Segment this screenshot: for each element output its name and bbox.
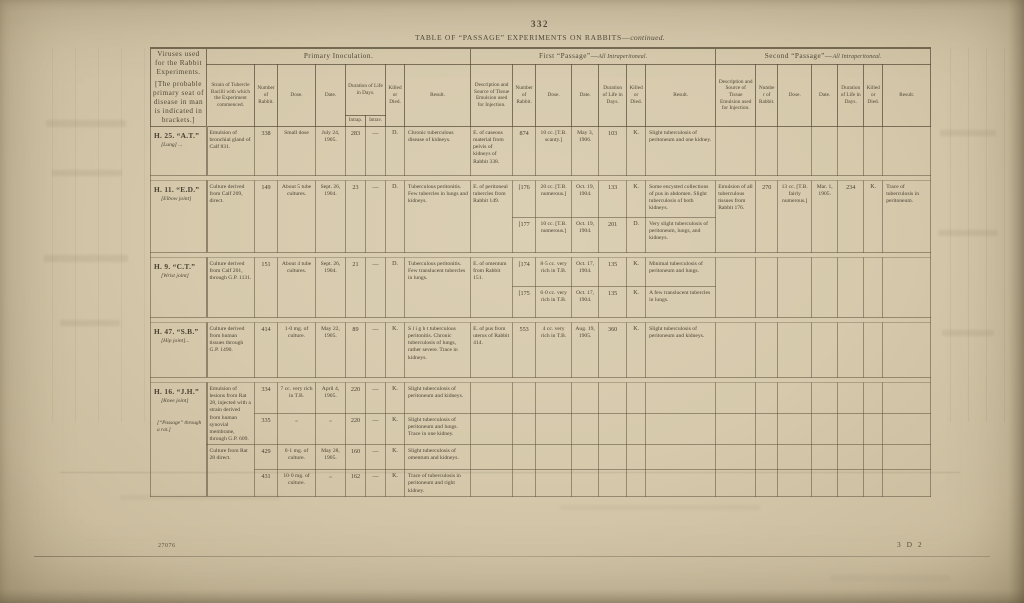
empty-cell — [756, 258, 778, 318]
row-h16-b: 335 „ „ 220 — K. Slight tuberculosis of … — [151, 414, 931, 445]
first-desc: E. of peritoneal tubercles from Rabbit 1… — [471, 181, 513, 253]
experiment-site-note: [“Passage” through a rat.] — [154, 420, 204, 434]
empty-cell — [883, 445, 931, 470]
primary-intrav: — — [366, 414, 386, 445]
empty-cell — [471, 445, 513, 470]
col-primary-killed: Killed or Died. — [386, 64, 405, 127]
col-primary-number: Number of Rabbit. — [255, 64, 278, 127]
empty-cell — [756, 445, 778, 470]
empty-cell — [838, 323, 864, 378]
empty-cell — [513, 414, 536, 445]
first-number: [174 — [513, 258, 536, 287]
empty-cell — [778, 445, 812, 470]
second-passage-title: Second “Passage”— — [765, 52, 833, 60]
experiment-id: H. 47. “S.B.” — [154, 327, 204, 336]
primary-dose: About 4 tube cultures. — [278, 258, 316, 318]
empty-cell — [864, 470, 883, 497]
first-killed: D. — [627, 218, 646, 253]
primary-date: „ — [316, 414, 346, 445]
primary-killed: K. — [386, 470, 405, 497]
empty-cell — [883, 414, 931, 445]
experiment-site: [Knee joint] — [154, 398, 204, 405]
primary-date: July 24, 1905. — [316, 127, 346, 176]
first-duration: 135 — [599, 258, 627, 287]
experiment-site: [Wrist joint] — [154, 273, 204, 280]
empty-cell — [572, 383, 599, 414]
second-desc: Emulsion of all tuberculous tissues from… — [716, 181, 756, 253]
showthrough-rule — [60, 472, 960, 473]
empty-cell — [572, 414, 599, 445]
virus-label: H. 25. “A.T.” [Lung] ... — [151, 127, 207, 176]
caption-continued: continued. — [630, 33, 665, 42]
first-date: Oct. 19, 1904. — [572, 181, 599, 218]
empty-cell — [716, 323, 756, 378]
primary-intrap: 89 — [346, 323, 366, 378]
col-second-date: Date. — [812, 64, 838, 127]
second-killed: K. — [864, 181, 883, 253]
group-first-passage: First “Passage”—All Intraperitoneal. — [471, 48, 716, 64]
showthrough-left — [30, 48, 148, 422]
col-primary-result: Result. — [405, 64, 471, 127]
col-strain: Strain of Tubercle Bacilli with which th… — [207, 64, 255, 127]
strain-cell: Culture from Rat 28 direct. — [207, 445, 255, 497]
row-h11-a: H. 11. “E.D.” [Elbow joint] Culture deri… — [151, 181, 931, 218]
primary-killed: K. — [386, 414, 405, 445]
page-edge-shadow — [1008, 0, 1024, 603]
first-dose: 6·0 cc. very rich in T.B. — [536, 287, 572, 318]
empty-cell — [838, 127, 864, 176]
empty-cell — [883, 127, 931, 176]
experiment-id: H. 25. “A.T.” — [154, 131, 204, 140]
empty-cell — [627, 445, 646, 470]
first-number: [176 — [513, 181, 536, 218]
primary-result: Trace of tuberculosis in peritoneum and … — [405, 470, 471, 497]
page-number: 332 — [150, 19, 930, 29]
header-viruses: Viruses used for the Rabbit Experiments.… — [151, 48, 207, 127]
showthrough-smudge — [120, 495, 280, 500]
primary-intrav: — — [366, 258, 386, 318]
empty-cell — [864, 383, 883, 414]
showthrough-smudge — [46, 120, 126, 127]
empty-cell — [883, 323, 931, 378]
group-second-passage: Second “Passage”—All Intraperitoneal. — [716, 48, 931, 64]
strain-cell: Emulsion of lesions from Rat 28, injecte… — [207, 383, 255, 445]
experiment-site: [Hip joint]... — [154, 338, 204, 345]
primary-dose: Small dose — [278, 127, 316, 176]
caption-main: TABLE OF “PASSAGE” EXPERIMENTS ON RABBIT… — [415, 33, 630, 42]
first-dose: 20 cc. [T.B. numerous.] — [536, 181, 572, 218]
empty-cell — [716, 383, 756, 414]
first-dose: 10 cc. [T.B. scanty.] — [536, 127, 572, 176]
virus-label: H. 9. “C.T.” [Wrist joint] — [151, 258, 207, 318]
primary-intrav: — — [366, 323, 386, 378]
first-date: Oct. 19, 1904. — [572, 218, 599, 253]
first-passage-note: All Intraperitoneal. — [598, 54, 647, 60]
empty-cell — [646, 445, 716, 470]
empty-cell — [536, 414, 572, 445]
empty-cell — [838, 470, 864, 497]
empty-cell — [883, 258, 931, 318]
col-first-dose: Dose. — [536, 64, 572, 127]
second-date: Mar. 1, 1905. — [812, 181, 838, 253]
col-first-duration: Duration of Life in Days. — [599, 64, 627, 127]
first-dose: 10 cc. [T.B. numerous.] — [536, 218, 572, 253]
primary-dose: „ — [278, 414, 316, 445]
empty-cell — [716, 470, 756, 497]
empty-cell — [864, 258, 883, 318]
empty-cell — [627, 414, 646, 445]
empty-cell — [513, 470, 536, 497]
gathering-signature: 3 D 2 — [897, 540, 924, 549]
second-number: 270 — [756, 181, 778, 253]
showthrough-smudge — [940, 130, 996, 136]
row-h16-d: 431 10·0 mg. of culture. „ 162 — K. Trac… — [151, 470, 931, 497]
first-dose: 4 cc. very rich in T.B. — [536, 323, 572, 378]
empty-cell — [812, 258, 838, 318]
empty-cell — [536, 470, 572, 497]
first-duration: 103 — [599, 127, 627, 176]
footer-rule — [34, 556, 990, 557]
col-intrap: Intrap. — [346, 116, 366, 127]
primary-number: 335 — [255, 414, 278, 445]
primary-intrap: 21 — [346, 258, 366, 318]
primary-number: 429 — [255, 445, 278, 470]
first-duration: 360 — [599, 323, 627, 378]
first-duration: 201 — [599, 218, 627, 253]
empty-cell — [756, 383, 778, 414]
col-second-desc: Description and Source of Tissue Emulsio… — [716, 64, 756, 127]
col-intrav: Intrav. — [366, 116, 386, 127]
empty-cell — [838, 258, 864, 318]
virus-label: H. 11. “E.D.” [Elbow joint] — [151, 181, 207, 253]
first-number: [177 — [513, 218, 536, 253]
row-h47: H. 47. “S.B.” [Hip joint]... Culture der… — [151, 323, 931, 378]
showthrough-smudge — [942, 330, 994, 336]
showthrough-smudge — [938, 230, 998, 236]
showthrough-smudge — [44, 255, 128, 262]
primary-date: May 22, 1905. — [316, 323, 346, 378]
primary-date: „ — [316, 470, 346, 497]
first-duration: 135 — [599, 287, 627, 318]
first-number: [175 — [513, 287, 536, 318]
empty-cell — [778, 127, 812, 176]
table-caption: TABLE OF “PASSAGE” EXPERIMENTS ON RABBIT… — [110, 33, 970, 42]
empty-cell — [864, 414, 883, 445]
primary-result: S l i g h t tuberculous peritonitis. Chr… — [405, 323, 471, 378]
printer-signature: 27076 — [158, 543, 176, 549]
primary-intrap: 220 — [346, 383, 366, 414]
primary-dose: 10·0 mg. of culture. — [278, 470, 316, 497]
first-desc: E. of omentum from Rabbit 151. — [471, 258, 513, 318]
empty-cell — [599, 414, 627, 445]
empty-cell — [536, 383, 572, 414]
first-killed: K. — [627, 258, 646, 287]
primary-number: 431 — [255, 470, 278, 497]
primary-intrav: — — [366, 181, 386, 253]
first-date: Oct. 17, 1904. — [572, 287, 599, 318]
primary-dose: 7 cc. very rich in T.B. — [278, 383, 316, 414]
primary-intrap: 283 — [346, 127, 366, 176]
second-dose: 13 cc. [T.B. fairly numerous.] — [778, 181, 812, 253]
viruses-title: Viruses used for the Rabbit Experiments. — [153, 50, 204, 77]
col-first-date: Date. — [572, 64, 599, 127]
primary-date: May 28, 1905. — [316, 445, 346, 470]
primary-result: Slight tuberculosis of omentum and kidne… — [405, 445, 471, 470]
empty-cell — [812, 470, 838, 497]
primary-number: 334 — [255, 383, 278, 414]
empty-cell — [471, 414, 513, 445]
second-passage-note: All Intraperitoneal. — [833, 54, 882, 60]
first-killed: K. — [627, 287, 646, 318]
primary-dose: 0·1 mg. of culture. — [278, 445, 316, 470]
primary-number: 149 — [255, 181, 278, 253]
first-result: Very slight tuberculosis of peritoneum, … — [646, 218, 716, 253]
first-date: Oct. 17, 1904. — [572, 258, 599, 287]
empty-cell — [838, 383, 864, 414]
primary-date: Sept. 26, 1904. — [316, 181, 346, 253]
showthrough-smudge — [60, 320, 120, 326]
empty-cell — [572, 445, 599, 470]
primary-killed: K. — [386, 445, 405, 470]
empty-cell — [471, 470, 513, 497]
col-second-duration: Duration of Life in Days. — [838, 64, 864, 127]
col-primary-date: Date. — [316, 64, 346, 127]
second-result: Trace of tuberculosis in peritoneum. — [883, 181, 931, 253]
empty-cell — [838, 445, 864, 470]
col-first-result: Result. — [646, 64, 716, 127]
strain-cell: Emulsion of bronchial gland of Calf 831. — [207, 127, 255, 176]
first-number: 874 — [513, 127, 536, 176]
empty-cell — [646, 470, 716, 497]
primary-intrap: 162 — [346, 470, 366, 497]
empty-cell — [778, 323, 812, 378]
row-h16-c: Culture from Rat 28 direct. 429 0·1 mg. … — [151, 445, 931, 470]
empty-cell — [812, 383, 838, 414]
primary-result: Slight tuberculosis of peritoneum and lu… — [405, 414, 471, 445]
primary-killed: K. — [386, 383, 405, 414]
col-first-number: Number of Rabbit. — [513, 64, 536, 127]
showthrough-smudge — [560, 505, 760, 510]
empty-cell — [716, 414, 756, 445]
first-killed: K. — [627, 181, 646, 218]
col-second-result: Result. — [883, 64, 931, 127]
empty-cell — [756, 470, 778, 497]
first-killed: K. — [627, 323, 646, 378]
first-passage-title: First “Passage”— — [539, 52, 598, 60]
primary-date: April 4, 1905. — [316, 383, 346, 414]
col-first-killed: Killed or Died. — [627, 64, 646, 127]
passage-experiments-table: Viruses used for the Rabbit Experiments.… — [150, 47, 931, 497]
first-dose: 8·5 cc. very rich in T.B. — [536, 258, 572, 287]
first-killed: K. — [627, 127, 646, 176]
empty-cell — [812, 127, 838, 176]
primary-intrav: — — [366, 127, 386, 176]
empty-cell — [599, 383, 627, 414]
primary-result: Tuberculous peritonitis. Few tubercles i… — [405, 181, 471, 253]
showthrough-smudge — [830, 575, 950, 581]
row-h25: H. 25. “A.T.” [Lung] ... Emulsion of bro… — [151, 127, 931, 176]
primary-dose: 1·0 mg. of culture. — [278, 323, 316, 378]
empty-cell — [838, 414, 864, 445]
first-date: May 3, 1906. — [572, 127, 599, 176]
empty-cell — [471, 383, 513, 414]
empty-cell — [756, 127, 778, 176]
col-primary-duration: Duration of Life in Days. — [346, 64, 386, 116]
empty-cell — [646, 414, 716, 445]
primary-number: 338 — [255, 127, 278, 176]
primary-date: Sept. 26, 1904. — [316, 258, 346, 318]
empty-cell — [599, 445, 627, 470]
primary-result: Slight tuberculosis of peritoneum and ki… — [405, 383, 471, 414]
empty-cell — [756, 323, 778, 378]
primary-intrav: — — [366, 470, 386, 497]
empty-cell — [646, 383, 716, 414]
strain-cell: Culture derived from human tissues throu… — [207, 323, 255, 378]
first-result: A few translucent tubercles in lungs. — [646, 287, 716, 318]
experiment-site: [Elbow joint] — [154, 196, 204, 203]
col-second-number: Number of Rabbit. — [756, 64, 778, 127]
empty-cell — [778, 470, 812, 497]
first-number: 553 — [513, 323, 536, 378]
scanned-page: 332 TABLE OF “PASSAGE” EXPERIMENTS ON RA… — [0, 0, 1024, 603]
experiment-id: H. 11. “E.D.” — [154, 185, 204, 194]
primary-intrav: — — [366, 445, 386, 470]
empty-cell — [864, 127, 883, 176]
virus-label: H. 47. “S.B.” [Hip joint]... — [151, 323, 207, 378]
primary-result: Tuberculous peritonitis. Few translucent… — [405, 258, 471, 318]
group-primary-inoculation: Primary Inoculation. — [207, 48, 471, 64]
primary-killed: D. — [386, 258, 405, 318]
col-second-dose: Dose. — [778, 64, 812, 127]
primary-number: 151 — [255, 258, 278, 318]
primary-killed: K. — [386, 323, 405, 378]
empty-cell — [864, 445, 883, 470]
col-second-killed: Killed or Died. — [864, 64, 883, 127]
first-result: Slight tuberculosis of peritoneum and on… — [646, 127, 716, 176]
empty-cell — [536, 445, 572, 470]
viruses-note: [The probable primary seat of disease in… — [153, 80, 204, 125]
primary-intrap: 220 — [346, 414, 366, 445]
col-first-desc: Description and Source of Tissue Emulsio… — [471, 64, 513, 127]
empty-cell — [756, 414, 778, 445]
empty-cell — [812, 323, 838, 378]
empty-cell — [716, 127, 756, 176]
first-desc: E. of pus from uterus of Rabbit 414. — [471, 323, 513, 378]
page-edge-shadow — [0, 589, 1024, 603]
empty-cell — [812, 445, 838, 470]
primary-intrap: 160 — [346, 445, 366, 470]
primary-number: 414 — [255, 323, 278, 378]
empty-cell — [599, 470, 627, 497]
primary-killed: D. — [386, 127, 405, 176]
row-h16-a: H. 16. “J.H.” [Knee joint] [“Passage” th… — [151, 383, 931, 414]
empty-cell — [716, 445, 756, 470]
empty-cell — [513, 445, 536, 470]
empty-cell — [716, 258, 756, 318]
first-result: Slight tuberculosis of peritoneum and ki… — [646, 323, 716, 378]
first-result: Minimal tuberculosis of peritoneum and l… — [646, 258, 716, 287]
primary-intrap: 23 — [346, 181, 366, 253]
virus-label: H. 16. “J.H.” [Knee joint] [“Passage” th… — [151, 383, 207, 497]
strain-cell: Culture derived from Calf 209, direct. — [207, 181, 255, 253]
primary-dose: About 5 tube cultures. — [278, 181, 316, 253]
primary-intrav: — — [366, 383, 386, 414]
experiment-id: H. 9. “C.T.” — [154, 262, 204, 271]
empty-cell — [883, 470, 931, 497]
empty-cell — [778, 383, 812, 414]
first-desc: E. of caseous material from pelvis of ki… — [471, 127, 513, 176]
empty-cell — [627, 470, 646, 497]
showthrough-smudge — [52, 170, 122, 176]
primary-killed: D. — [386, 181, 405, 253]
empty-cell — [627, 383, 646, 414]
empty-cell — [778, 414, 812, 445]
empty-cell — [864, 323, 883, 378]
first-duration: 133 — [599, 181, 627, 218]
empty-cell — [778, 258, 812, 318]
row-h9-a: H. 9. “C.T.” [Wrist joint] Culture deriv… — [151, 258, 931, 287]
empty-cell — [572, 470, 599, 497]
empty-cell — [812, 414, 838, 445]
second-duration: 234 — [838, 181, 864, 253]
primary-result: Chronic tuberculous disease of kidneys. — [405, 127, 471, 176]
strain-cell: Culture derived from Calf 201, through G… — [207, 258, 255, 318]
first-date: Aug. 19, 1905. — [572, 323, 599, 378]
first-result: Some encysted collections of pus in abdo… — [646, 181, 716, 218]
col-primary-dose: Dose. — [278, 64, 316, 127]
empty-cell — [883, 383, 931, 414]
empty-cell — [513, 383, 536, 414]
experiment-site: [Lung] ... — [154, 142, 204, 149]
experiment-id: H. 16. “J.H.” — [154, 387, 204, 396]
